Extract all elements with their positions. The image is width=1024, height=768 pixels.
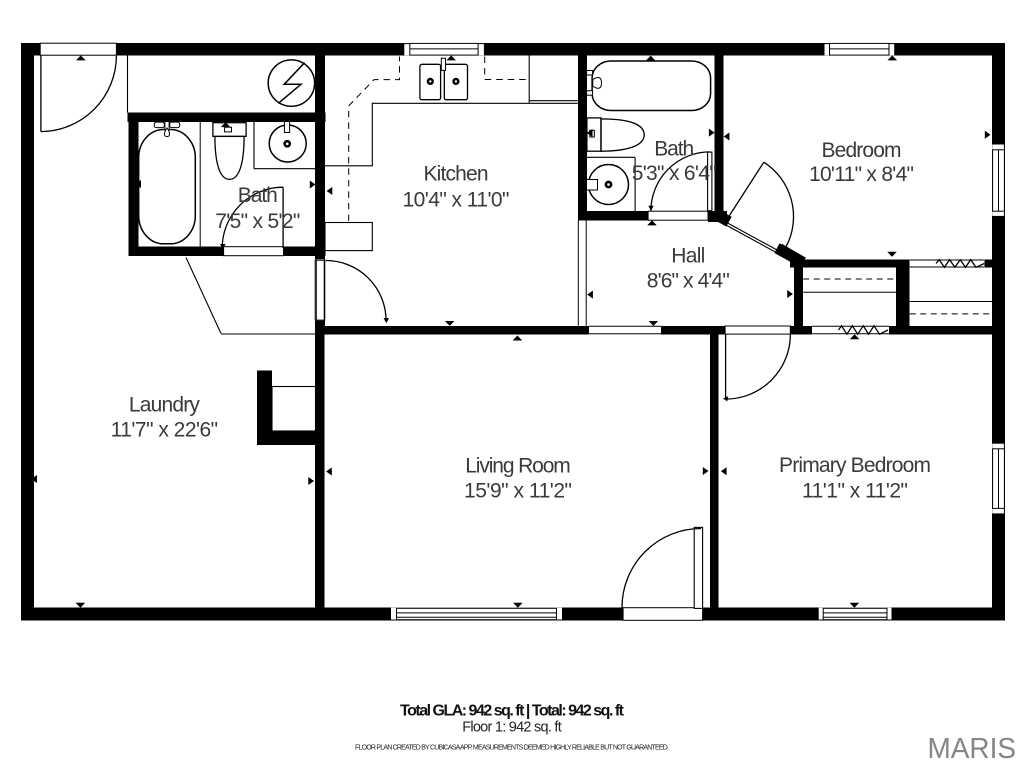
svg-text:Bath: Bath	[238, 184, 278, 207]
svg-text:Living Room: Living Room	[465, 454, 571, 477]
svg-text:FLOOR PLAN CREATED BY CUBICASA: FLOOR PLAN CREATED BY CUBICASA APP. MEAS…	[355, 745, 669, 752]
svg-text:Bedroom: Bedroom	[822, 139, 902, 162]
svg-text:5'3" x 6'4": 5'3" x 6'4"	[632, 162, 717, 185]
svg-text:Total GLA: 942 sq. ft | Total:: Total GLA: 942 sq. ft | Total: 942 sq. f…	[400, 703, 625, 720]
svg-text:11'7" x 22'6": 11'7" x 22'6"	[111, 419, 219, 442]
svg-text:Kitchen: Kitchen	[424, 163, 489, 186]
svg-text:10'4" x 11'0": 10'4" x 11'0"	[403, 188, 510, 211]
svg-text:Floor 1: 942 sq. ft: Floor 1: 942 sq. ft	[462, 720, 562, 736]
svg-text:Primary Bedroom: Primary Bedroom	[779, 454, 931, 477]
svg-text:15'9" x 11'2": 15'9" x 11'2"	[464, 479, 572, 502]
svg-text:8'6" x 4'4": 8'6" x 4'4"	[647, 270, 730, 293]
svg-text:Bath: Bath	[654, 137, 694, 160]
svg-text:Laundry: Laundry	[129, 394, 201, 417]
svg-text:7'5" x 5'2": 7'5" x 5'2"	[215, 210, 300, 233]
svg-text:10'11" x 8'4": 10'11" x 8'4"	[809, 163, 914, 186]
svg-text:MARIS: MARIS	[928, 733, 1017, 765]
svg-text:11'1" x 11'2": 11'1" x 11'2"	[802, 480, 908, 503]
svg-text:Hall: Hall	[671, 245, 705, 268]
